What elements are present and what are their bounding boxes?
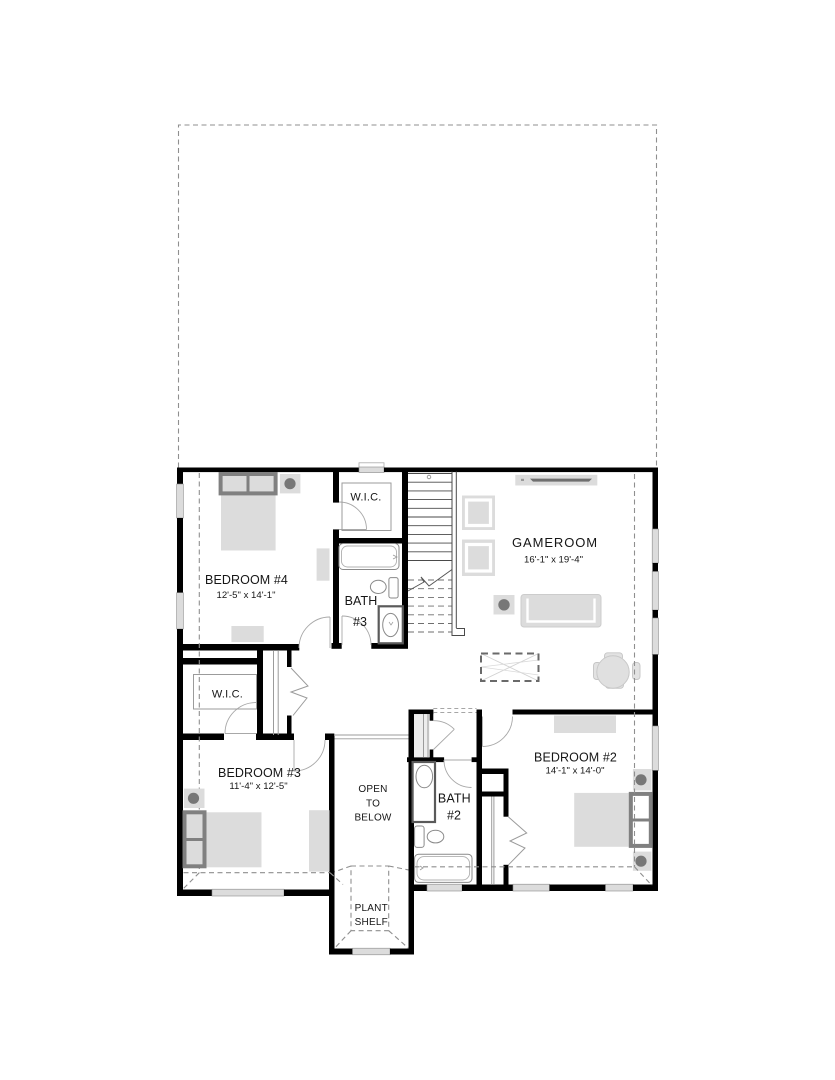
svg-text:BATH: BATH: [345, 594, 378, 608]
svg-text:PLANT: PLANT: [355, 903, 388, 914]
svg-text:SHELF: SHELF: [355, 917, 388, 928]
svg-text:12'-5" x 14'-1": 12'-5" x 14'-1": [216, 590, 275, 601]
svg-text:BELOW: BELOW: [354, 813, 391, 824]
svg-text:BATH: BATH: [438, 792, 471, 806]
svg-text:TO: TO: [366, 798, 380, 809]
svg-text:W.I.C.: W.I.C.: [350, 492, 381, 504]
svg-text:#2: #2: [447, 809, 461, 823]
svg-text:14'-1" x 14'-0": 14'-1" x 14'-0": [545, 766, 604, 777]
svg-text:BEDROOM #3: BEDROOM #3: [218, 766, 301, 780]
svg-text:BEDROOM #4: BEDROOM #4: [205, 573, 288, 587]
svg-text:#3: #3: [353, 615, 367, 629]
svg-text:W.I.C.: W.I.C.: [212, 689, 243, 701]
svg-text:16'-1" x 19'-4": 16'-1" x 19'-4": [524, 555, 583, 566]
svg-text:BEDROOM #2: BEDROOM #2: [534, 751, 617, 765]
svg-text:OPEN: OPEN: [358, 784, 387, 795]
svg-text:11'-4" x 12'-5": 11'-4" x 12'-5": [229, 781, 287, 792]
svg-text:GAMEROOM: GAMEROOM: [512, 535, 598, 550]
